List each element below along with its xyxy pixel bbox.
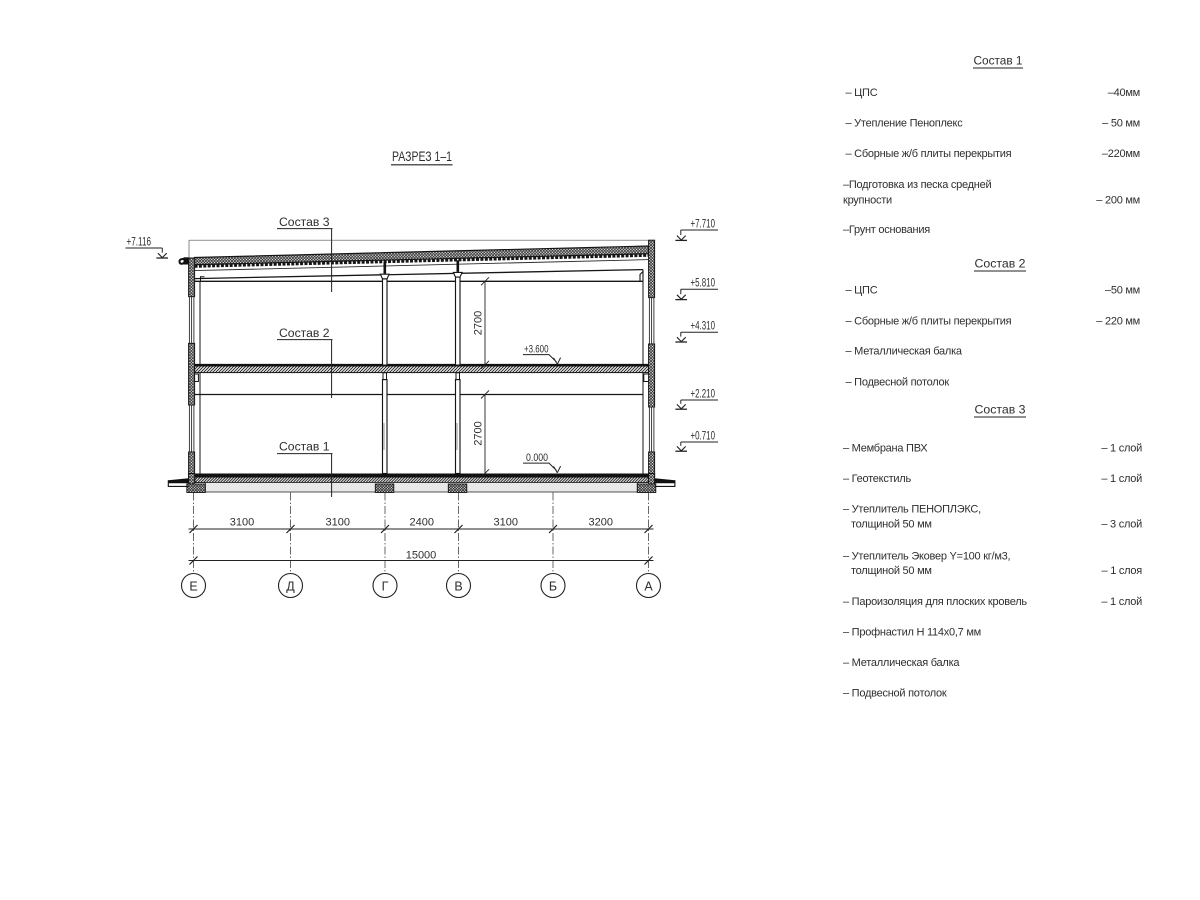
svg-text:– Профнастил Н 114х0,7 мм: – Профнастил Н 114х0,7 мм [843, 627, 981, 639]
svg-text:+5.810: +5.810 [691, 276, 716, 290]
svg-text:2400: 2400 [410, 517, 434, 529]
svg-text:В: В [454, 579, 462, 593]
svg-text:–50 мм: –50 мм [1105, 285, 1140, 297]
svg-text:– Сборные ж/б плиты перекрытия: – Сборные ж/б плиты перекрытия [846, 316, 1012, 328]
svg-text:Б: Б [549, 579, 557, 593]
svg-text:– Металлическая балка: – Металлическая балка [843, 657, 960, 669]
svg-text:Состав 2: Состав 2 [279, 328, 330, 340]
svg-text:Г: Г [382, 579, 389, 593]
svg-text:А: А [644, 579, 653, 593]
svg-text:+4.310: +4.310 [691, 319, 716, 333]
svg-text:3100: 3100 [230, 517, 254, 529]
svg-text:– Подвесной потолок: – Подвесной потолок [846, 377, 950, 389]
svg-text:3100: 3100 [494, 517, 518, 529]
svg-text:+0.710: +0.710 [691, 428, 716, 442]
svg-text:– Утеплитель ПЕНОПЛЭКС,: – Утеплитель ПЕНОПЛЭКС, [843, 504, 981, 516]
svg-text:–Подготовка из песка средней: –Подготовка из песка средней [843, 179, 991, 191]
svg-text:Состав 3: Состав 3 [279, 217, 330, 229]
svg-text:– 50 мм: – 50 мм [1102, 118, 1140, 130]
svg-text:– 1 слой: – 1 слой [1101, 473, 1142, 485]
svg-text:РАЗРЕЗ 1–1: РАЗРЕЗ 1–1 [392, 149, 452, 164]
svg-text:+3.600: +3.600 [524, 343, 549, 355]
svg-text:3200: 3200 [589, 517, 613, 529]
svg-text:– Утеплитель Эковер Y=100 кг/м: – Утеплитель Эковер Y=100 кг/м3, [843, 551, 1011, 563]
svg-text:– Металлическая балка: – Металлическая балка [846, 346, 963, 358]
svg-text:Состав 3: Состав 3 [975, 403, 1026, 417]
svg-text:– 1 слой: – 1 слой [1101, 443, 1142, 455]
svg-text:– 220 мм: – 220 мм [1096, 316, 1140, 328]
svg-text:3100: 3100 [326, 517, 350, 529]
svg-text:– Утепление Пеноплекс: – Утепление Пеноплекс [846, 118, 964, 130]
svg-text:–40мм: –40мм [1108, 87, 1140, 99]
svg-text:2700: 2700 [473, 311, 485, 335]
svg-text:– Пароизоляция для плоских кро: – Пароизоляция для плоских кровель [843, 596, 1027, 608]
svg-text:– Подвесной потолок: – Подвесной потолок [843, 688, 947, 700]
svg-text:0.000: 0.000 [526, 452, 548, 464]
svg-text:Д: Д [286, 579, 295, 593]
svg-text:– 1 слоя: – 1 слоя [1102, 565, 1143, 577]
svg-text:– 3 слой: – 3 слой [1101, 519, 1142, 531]
svg-text:крупности: крупности [843, 195, 892, 207]
svg-text:2700: 2700 [473, 421, 485, 445]
svg-text:Состав 1: Состав 1 [279, 442, 330, 454]
svg-text:Е: Е [189, 579, 197, 593]
svg-text:–220мм: –220мм [1102, 148, 1140, 160]
svg-text:– 1 слой: – 1 слой [1101, 596, 1142, 608]
svg-text:Состав 2: Состав 2 [975, 257, 1026, 271]
svg-text:+7.116: +7.116 [127, 235, 152, 249]
svg-text:толщиной 50 мм: толщиной 50 мм [851, 565, 932, 577]
svg-text:–Грунт основания: –Грунт основания [843, 224, 930, 236]
svg-text:– Геотекстиль: – Геотекстиль [843, 473, 911, 485]
svg-text:– Мембрана ПВХ: – Мембрана ПВХ [843, 443, 928, 455]
svg-text:– ЦПС: – ЦПС [846, 87, 878, 99]
svg-text:– ЦПС: – ЦПС [846, 285, 878, 297]
svg-text:15000: 15000 [406, 550, 437, 562]
svg-text:– Сборные ж/б плиты перекрытия: – Сборные ж/б плиты перекрытия [846, 148, 1012, 160]
svg-text:Состав 1: Состав 1 [974, 54, 1023, 68]
svg-text:толщиной 50 мм: толщиной 50 мм [851, 519, 932, 531]
svg-text:+7.710: +7.710 [691, 216, 716, 230]
svg-text:– 200 мм: – 200 мм [1096, 195, 1140, 207]
svg-text:+2.210: +2.210 [691, 386, 716, 400]
